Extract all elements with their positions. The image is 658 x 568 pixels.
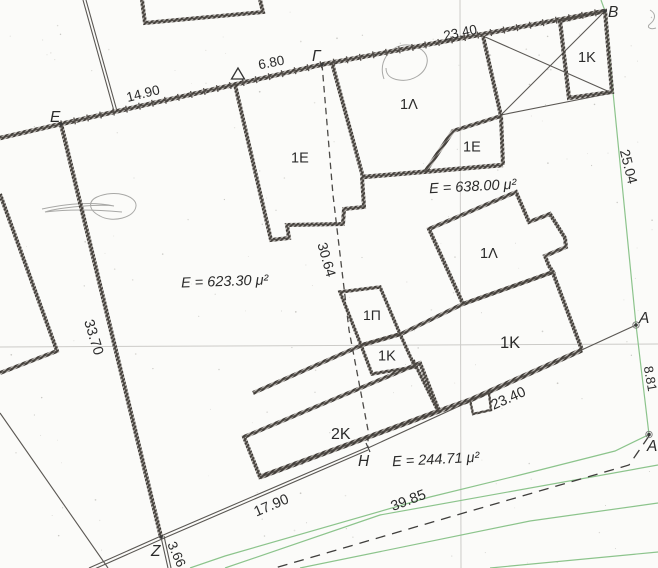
svg-text:1Ε: 1Ε xyxy=(463,140,481,156)
svg-text:Α: Α xyxy=(646,438,657,455)
svg-text:2Κ: 2Κ xyxy=(331,426,351,443)
svg-text:1Ε: 1Ε xyxy=(291,151,309,167)
svg-text:1Π: 1Π xyxy=(363,307,381,323)
svg-text:Α: Α xyxy=(638,310,649,327)
svg-text:1Κ: 1Κ xyxy=(378,349,396,365)
svg-text:1Κ: 1Κ xyxy=(500,334,520,352)
svg-text:Γ: Γ xyxy=(312,48,322,65)
svg-text:1Λ: 1Λ xyxy=(480,246,498,262)
svg-text:Β: Β xyxy=(608,4,618,21)
svg-text:Ε: Ε xyxy=(50,109,61,126)
svg-text:1Κ: 1Κ xyxy=(578,50,596,66)
svg-text:1Λ: 1Λ xyxy=(400,97,418,113)
svg-text:E = 623.30 μ²: E = 623.30 μ² xyxy=(181,272,270,291)
svg-text:Η: Η xyxy=(358,453,370,470)
svg-text:Ζ: Ζ xyxy=(150,543,161,560)
